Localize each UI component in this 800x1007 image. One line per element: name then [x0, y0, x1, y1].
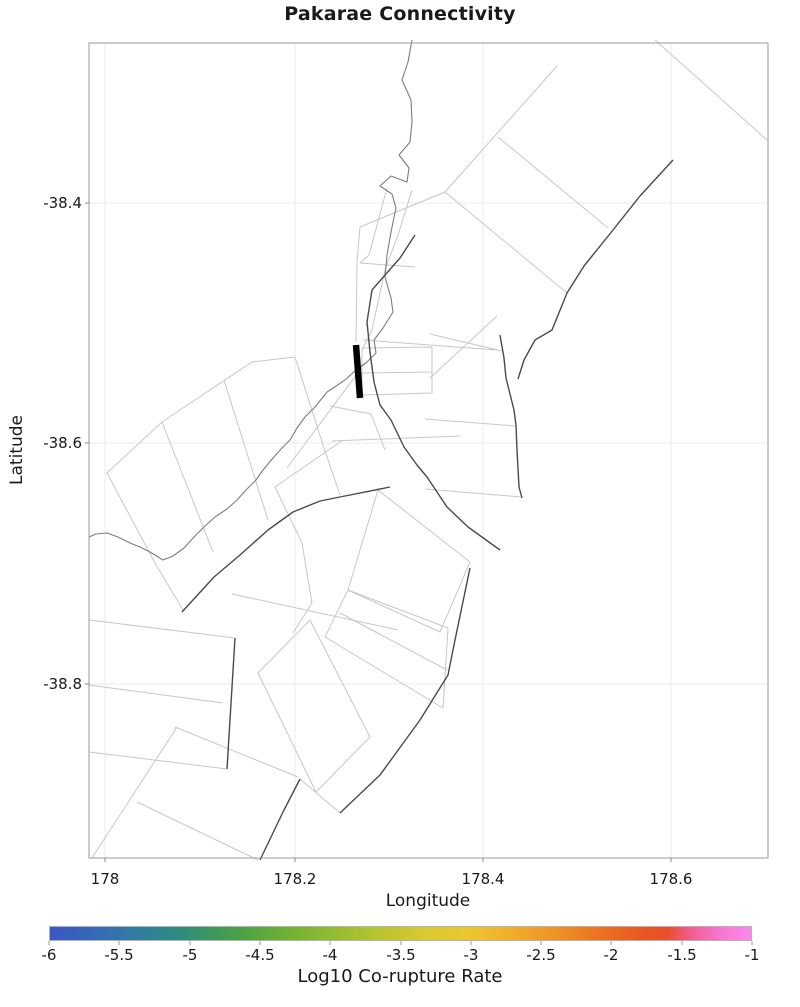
x-tick-label: 178.4 [462, 870, 505, 888]
colorbar-tick-label: -5.5 [104, 946, 133, 964]
x-tick-label: 178 [91, 870, 120, 888]
colorbar-tick-label: -1 [745, 946, 760, 964]
colorbar-gradient [49, 926, 752, 941]
colorbar-tick-label: -2.5 [526, 946, 555, 964]
coastline [89, 40, 412, 560]
y-tick-label: -38.8 [30, 675, 82, 693]
chart-title: Pakarae Connectivity [0, 3, 800, 25]
map-canvas [0, 0, 800, 1007]
x-tick-label: 178.2 [274, 870, 317, 888]
highlight-fault [356, 345, 360, 398]
x-tick-label: 178.6 [650, 870, 693, 888]
gridlines [89, 43, 768, 858]
colorbar-tick-label: -3.5 [386, 946, 415, 964]
colorbar-label: Log10 Co-rupture Rate [298, 966, 503, 987]
colorbar-tick-label: -5 [183, 946, 198, 964]
colorbar-tick-label: -2 [604, 946, 619, 964]
y-tick-label: -38.4 [30, 194, 82, 212]
fault-outlines [89, 40, 767, 860]
colorbar-tick-label: -1.5 [667, 946, 696, 964]
x-axis-label: Longitude [386, 891, 471, 911]
colorbar-tick-label: -3 [464, 946, 479, 964]
colorbar-tick-label: -4 [323, 946, 338, 964]
fault-traces [182, 160, 673, 860]
colorbar-tick-label: -6 [42, 946, 57, 964]
y-tick-label: -38.6 [30, 434, 82, 452]
plot-frame [89, 43, 768, 858]
colorbar-tick-label: -4.5 [245, 946, 274, 964]
tick-marks [49, 203, 752, 945]
figure-root: Pakarae Connectivity Longitude Latitude … [0, 0, 800, 1007]
y-axis-label: Latitude [7, 415, 27, 485]
